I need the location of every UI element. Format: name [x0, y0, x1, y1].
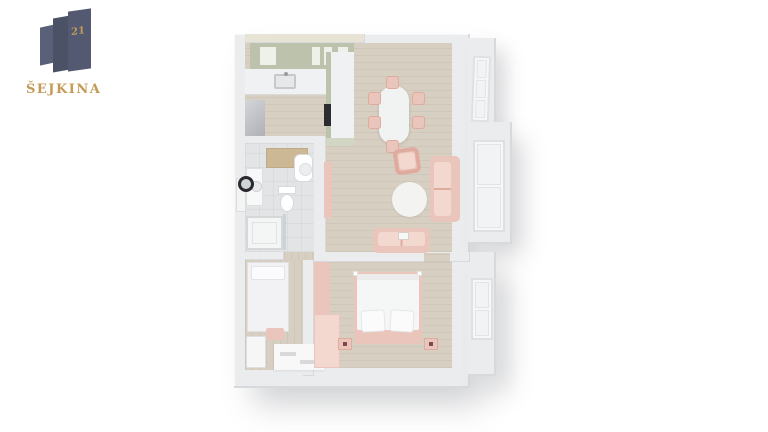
- pillow: [389, 309, 414, 332]
- toilet-bowl: [280, 194, 294, 212]
- dining-chair: [386, 76, 399, 89]
- rug-stripe: [280, 352, 296, 356]
- pink-stool: [266, 328, 284, 340]
- round-mirror: [238, 176, 254, 192]
- dining-table: [379, 86, 409, 144]
- double-bed: [354, 272, 422, 344]
- toilet: [278, 186, 296, 212]
- window-pane: [477, 187, 501, 228]
- washing-machine: [294, 154, 313, 182]
- brand-name: ŠEJKINA: [26, 82, 136, 97]
- kitchen-sink: [274, 74, 296, 89]
- window-pane: [475, 100, 486, 118]
- bed-post: [417, 271, 422, 276]
- cabinet-slat: [312, 47, 320, 65]
- wall-bathroom-hall: [245, 252, 284, 260]
- dining-chair: [368, 116, 381, 129]
- pillow: [360, 309, 385, 332]
- dining-chair: [368, 92, 381, 105]
- bedroom-doorway: [424, 253, 450, 262]
- window-pane: [476, 80, 487, 98]
- armchair: [392, 146, 421, 175]
- pink-shelf: [324, 162, 332, 218]
- wardrobe-upper: [314, 262, 330, 314]
- sofa-east: [430, 156, 460, 222]
- window-pane: [477, 144, 501, 185]
- brand-logo: 21 ŠEJKINA: [26, 8, 136, 102]
- shower-glass: [283, 214, 286, 250]
- white-dresser: [246, 336, 266, 368]
- bed-post: [353, 271, 358, 276]
- nightstand-right: [424, 338, 438, 350]
- oven: [324, 104, 331, 126]
- toilet-tank: [278, 186, 296, 194]
- single-bed: [247, 262, 289, 332]
- kitchen-base-cabinet: [326, 138, 354, 146]
- sofa-seat: [434, 162, 451, 216]
- logo-building-slab-right: 21: [68, 8, 91, 71]
- page: 21 ŠEJKINA: [0, 0, 768, 432]
- bathroom-doorway: [284, 252, 314, 260]
- fridge: [245, 100, 265, 136]
- nightstand-left: [338, 338, 352, 350]
- dining-chair: [412, 92, 425, 105]
- window-dining-northeast: [471, 56, 491, 123]
- brand-number: 21: [71, 25, 85, 38]
- window-pane: [475, 310, 489, 336]
- dining-chair: [412, 116, 425, 129]
- window-pane: [476, 60, 487, 78]
- window-bedroom-east: [471, 278, 493, 340]
- buildings-logo-icon: 21: [40, 8, 106, 76]
- shower: [246, 216, 283, 250]
- cabinet-slat: [260, 47, 276, 65]
- wall-top-accent: [245, 34, 365, 43]
- floor-plan: [228, 26, 540, 422]
- window-living-east: [473, 140, 505, 232]
- pillow: [251, 266, 285, 280]
- round-rug: [392, 182, 427, 217]
- wardrobe-lower: [314, 314, 340, 368]
- window-pane: [475, 282, 489, 308]
- sofa-tray: [398, 232, 409, 240]
